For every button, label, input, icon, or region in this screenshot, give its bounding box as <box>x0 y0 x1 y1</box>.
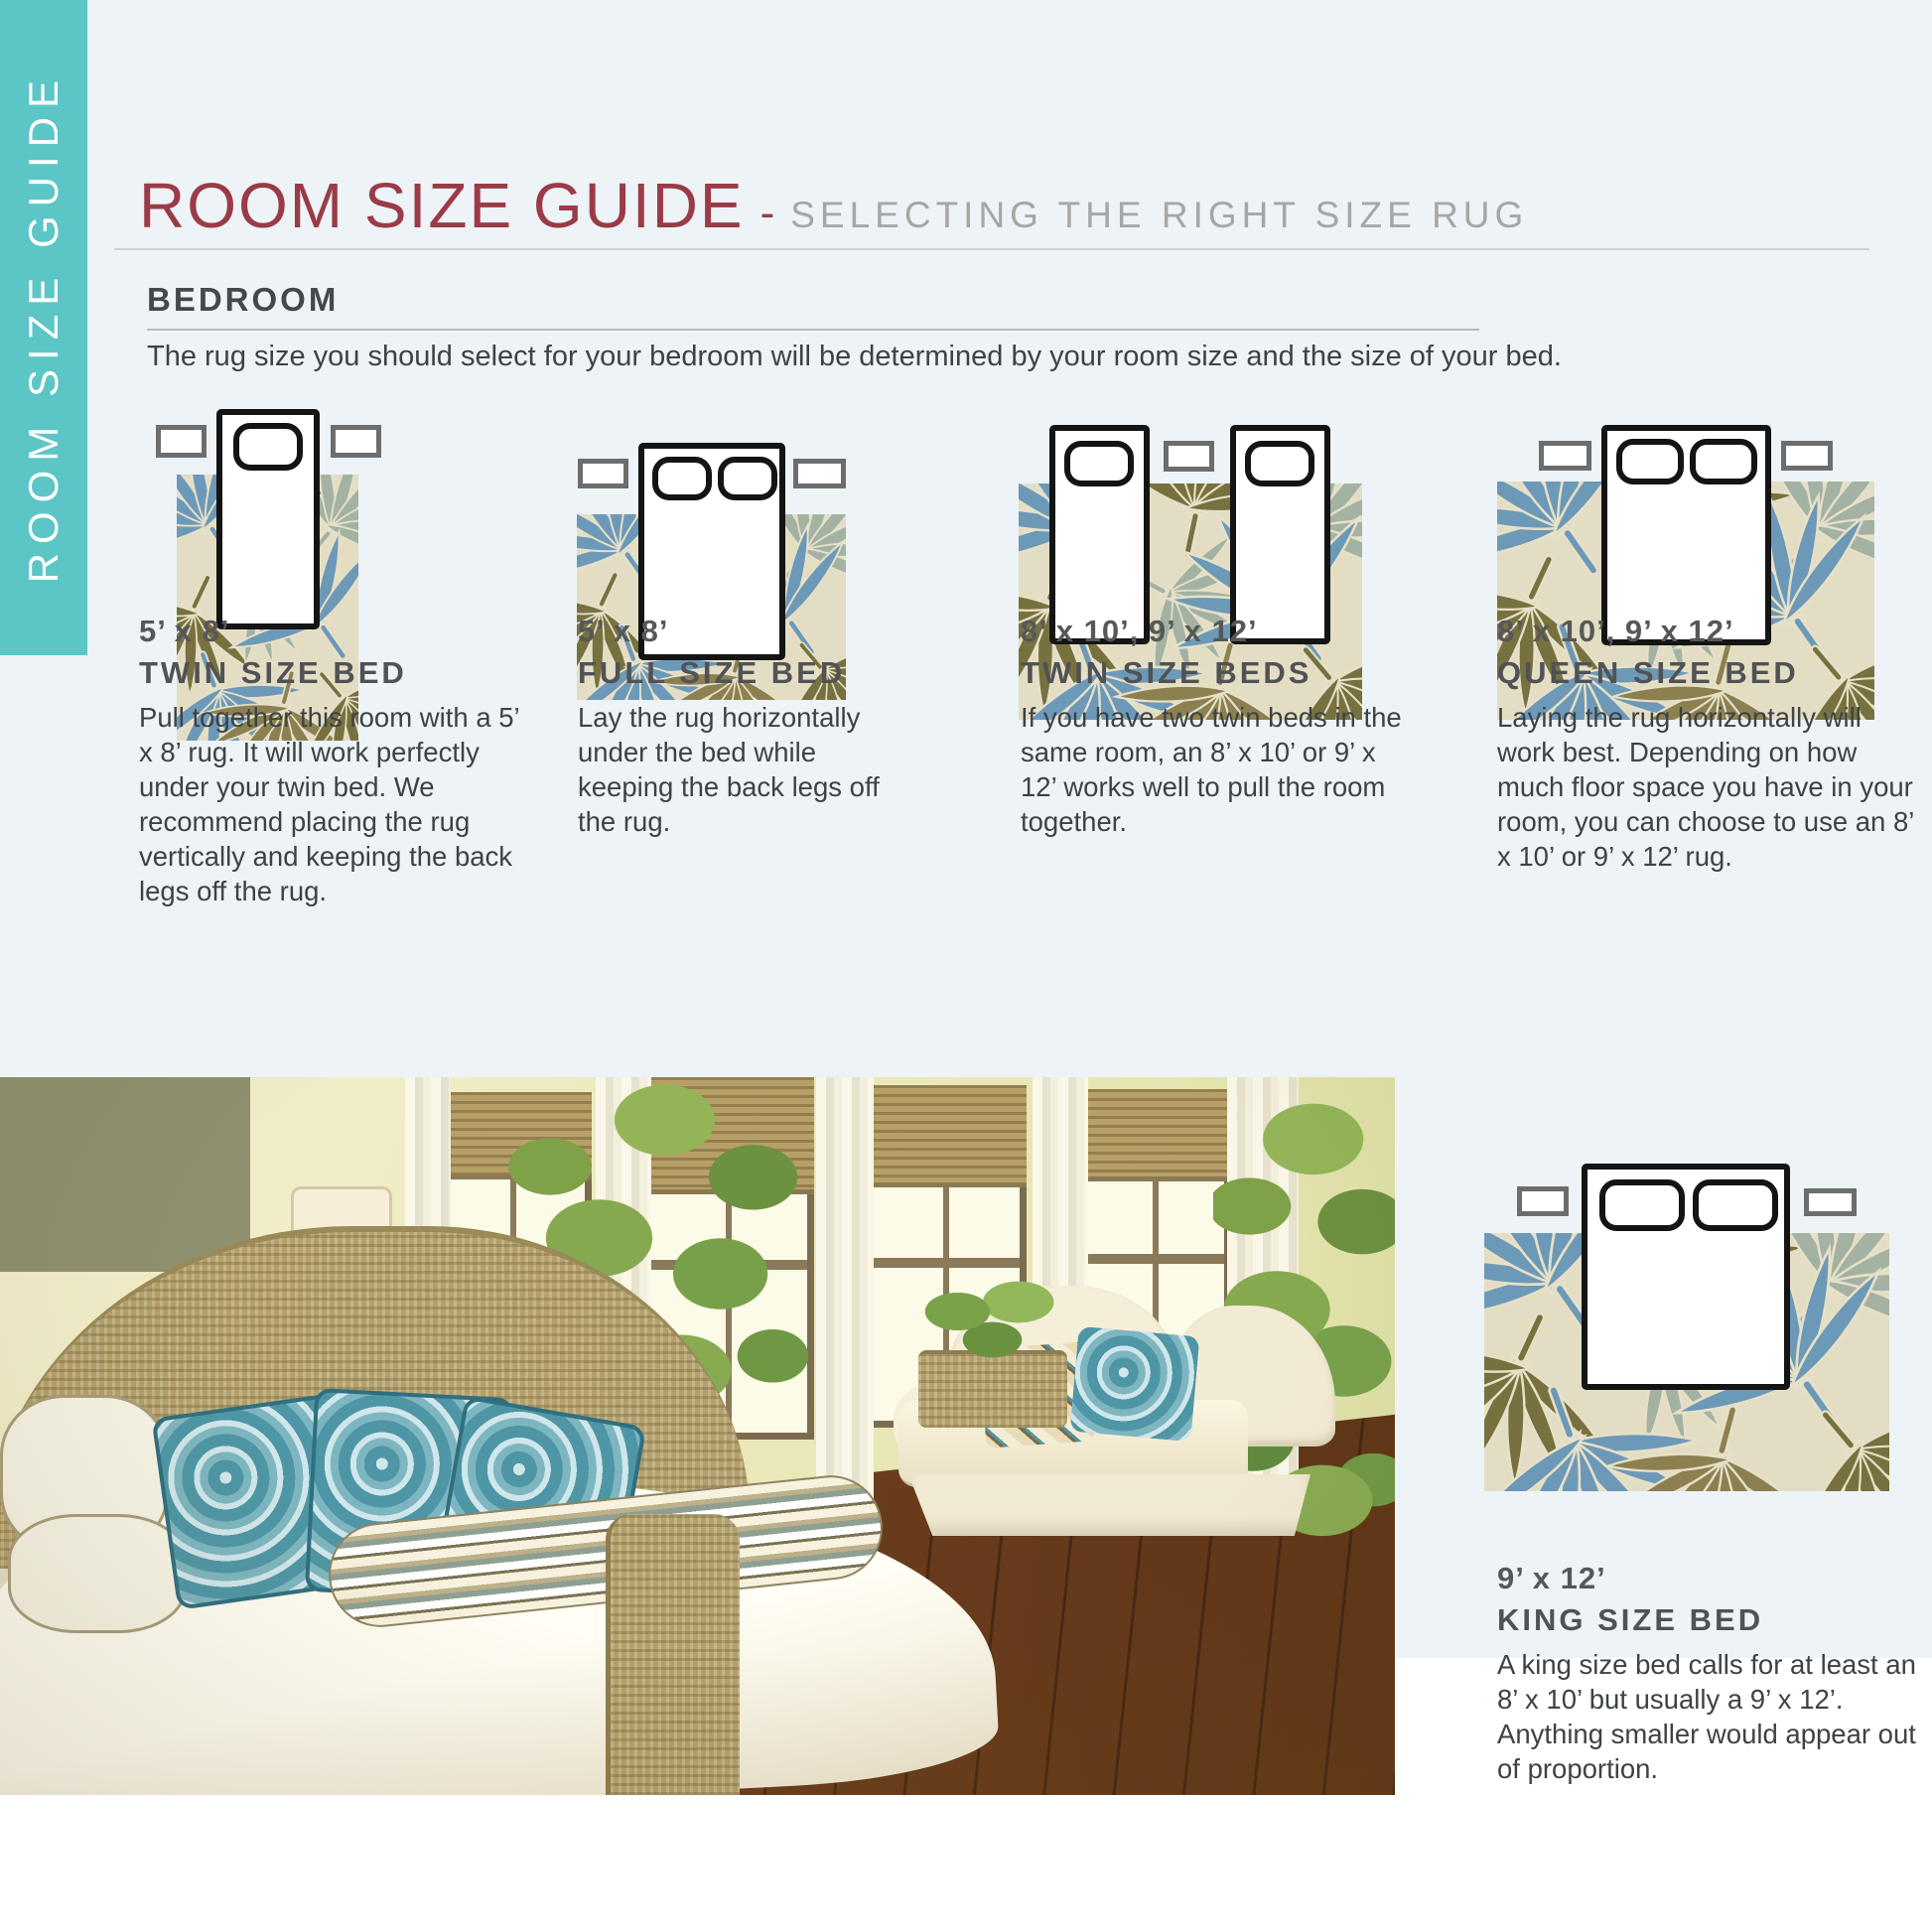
rug-size-label: 9’ x 12’ <box>1497 1561 1924 1596</box>
guide-card-full: 5’ x 8’ FULL SIZE BED Lay the rug horizo… <box>578 614 915 839</box>
nightstand-outline <box>331 425 381 458</box>
pillow-outline <box>1245 441 1314 486</box>
nightstand-outline <box>793 459 846 488</box>
pillow-outline <box>652 457 712 500</box>
title-separator: - <box>760 189 775 238</box>
photo-artwork-triptych <box>0 1077 250 1272</box>
pillow-outline <box>1616 439 1684 484</box>
photo-fern-plant <box>905 1274 1079 1368</box>
bed-outline <box>1582 1164 1790 1390</box>
bed-type-label: QUEEN SIZE BED <box>1497 655 1914 691</box>
page-header: ROOM SIZE GUIDE - SELECTING THE RIGHT SI… <box>139 169 1528 242</box>
photo-paisley-pillow <box>1070 1326 1200 1442</box>
pillow-outline <box>1690 439 1757 484</box>
pillow-outline <box>233 423 303 471</box>
nightstand-outline <box>156 425 207 458</box>
guide-card-twin: 5’ x 8’ TWIN SIZE BED Pull together this… <box>139 614 526 908</box>
bedroom-photo <box>0 1077 1395 1795</box>
photo-white-pillow <box>8 1514 187 1633</box>
photo-bamboo-shade <box>866 1085 1027 1187</box>
pillow-outline <box>1064 441 1134 486</box>
room-size-guide-page: ROOM SIZE GUIDE ROOM SIZE GUIDE - SELECT… <box>0 0 1932 1932</box>
nightstand-outline <box>1804 1188 1857 1216</box>
bed-type-label: FULL SIZE BED <box>578 655 915 691</box>
sidebar-tab: ROOM SIZE GUIDE <box>0 0 87 655</box>
photo-curtain <box>816 1077 874 1514</box>
guide-description: Lay the rug horizontally under the bed w… <box>578 700 915 839</box>
rug-size-label: 8’ x 10’, 9’ x 12’ <box>1021 614 1418 649</box>
bed-outline <box>1601 425 1771 645</box>
photo-wicker-footboard <box>606 1514 740 1795</box>
photo-chaise-skirt <box>908 1474 1311 1536</box>
section-heading: BEDROOM <box>147 281 339 319</box>
pillow-outline <box>1693 1179 1778 1231</box>
page-subtitle: SELECTING THE RIGHT SIZE RUG <box>790 195 1528 236</box>
pillow-outline <box>718 457 777 500</box>
diagram-king-bed <box>1469 1152 1906 1509</box>
header-divider <box>114 248 1869 250</box>
page-title: ROOM SIZE GUIDE <box>139 169 745 242</box>
nightstand-outline <box>1539 441 1591 471</box>
photo-bamboo-shade <box>1080 1089 1231 1181</box>
guide-description: A king size bed calls for at least an 8’… <box>1497 1647 1924 1786</box>
nightstand-outline <box>1164 441 1214 472</box>
bed-outline <box>1230 425 1330 644</box>
guide-card-queen: 8’ x 10’, 9’ x 12’ QUEEN SIZE BED Laying… <box>1497 614 1914 874</box>
section-divider <box>147 329 1479 331</box>
guide-description: Pull together this room with a 5’ x 8’ r… <box>139 700 526 908</box>
rug-size-label: 5’ x 8’ <box>578 614 915 649</box>
bed-outline <box>216 409 320 629</box>
guide-card-king: 9’ x 12’ KING SIZE BED A king size bed c… <box>1497 1561 1924 1786</box>
guide-description: If you have two twin beds in the same ro… <box>1021 700 1418 839</box>
rug-size-label: 5’ x 8’ <box>139 614 526 649</box>
guide-card-twins: 8’ x 10’, 9’ x 12’ TWIN SIZE BEDS If you… <box>1021 614 1418 839</box>
rug-size-label: 8’ x 10’, 9’ x 12’ <box>1497 614 1914 649</box>
bed-outline <box>1049 425 1150 644</box>
sidebar-label: ROOM SIZE GUIDE <box>20 71 68 583</box>
nightstand-outline <box>578 459 628 488</box>
section-intro: The rug size you should select for your … <box>147 341 1562 373</box>
pillow-outline <box>1599 1179 1685 1231</box>
nightstand-outline <box>1517 1186 1569 1216</box>
guide-description: Laying the rug horizontally will work be… <box>1497 700 1914 874</box>
bed-type-label: KING SIZE BED <box>1497 1602 1924 1638</box>
bed-type-label: TWIN SIZE BED <box>139 655 526 691</box>
bed-type-label: TWIN SIZE BEDS <box>1021 655 1418 691</box>
nightstand-outline <box>1781 441 1833 471</box>
